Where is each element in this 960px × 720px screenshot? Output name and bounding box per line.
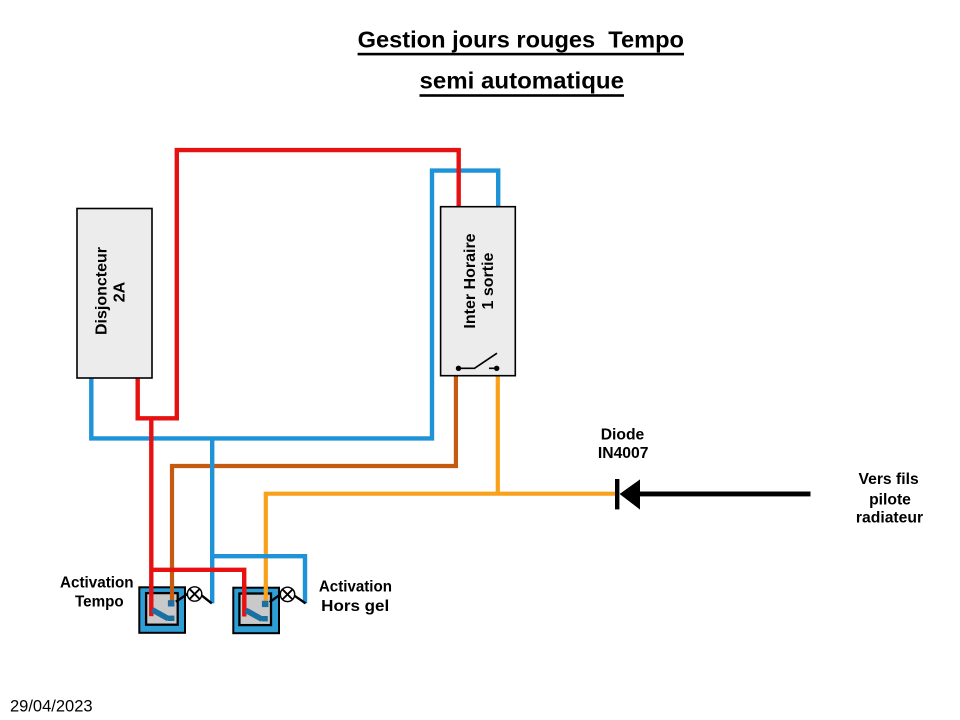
svg-text:Activation: Activation [319,579,392,596]
svg-text:Gestion jours rouges Tempo: Gestion jours rouges Tempo [358,27,684,53]
svg-text:29/04/2023: 29/04/2023 [10,698,93,716]
svg-text:Tempo: Tempo [75,594,124,611]
svg-text:2A: 2A [112,281,129,302]
svg-text:Hors gel: Hors gel [321,598,389,615]
svg-text:Activation: Activation [60,574,134,591]
svg-text:1 sortie: 1 sortie [480,252,497,309]
svg-text:Diode: Diode [601,426,645,443]
svg-text:IN4007: IN4007 [598,445,649,462]
svg-text:Inter Horaire: Inter Horaire [462,233,479,328]
svg-text:pilote: pilote [869,491,911,508]
svg-text:Vers fils: Vers fils [859,471,919,488]
svg-text:Disjoncteur: Disjoncteur [94,247,111,335]
svg-text:radiateur: radiateur [856,510,923,527]
svg-text:semi automatique: semi automatique [420,68,625,94]
